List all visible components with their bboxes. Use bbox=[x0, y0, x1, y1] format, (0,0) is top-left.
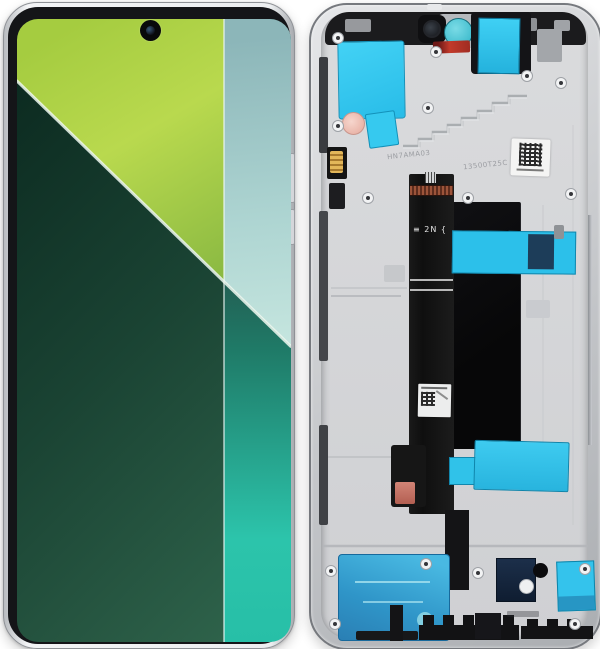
black-grommet-dot bbox=[533, 563, 548, 578]
camera-lens-hole bbox=[423, 20, 441, 38]
blue-tape-lower-mid bbox=[473, 440, 569, 492]
gold-contacts bbox=[330, 151, 343, 173]
blue-tape-top-left bbox=[337, 40, 405, 119]
blue-tape-top-right bbox=[478, 18, 521, 75]
screw bbox=[422, 102, 434, 114]
flex-white-line bbox=[410, 289, 453, 291]
antenna-block bbox=[390, 605, 403, 641]
punch-hole-camera-icon bbox=[140, 20, 161, 41]
flex-sticker-qr bbox=[421, 392, 435, 406]
right-rail-groove bbox=[588, 215, 592, 445]
screw bbox=[555, 77, 567, 89]
etched-marking-smudge bbox=[507, 611, 539, 617]
phone-screen bbox=[17, 19, 291, 642]
pink-adhesive-circle bbox=[342, 112, 365, 135]
blue-tape-small bbox=[365, 110, 400, 149]
screw bbox=[329, 618, 341, 630]
screw bbox=[420, 558, 432, 570]
tape-navy-section bbox=[528, 234, 554, 269]
phone-bezel bbox=[8, 7, 290, 644]
antenna-block bbox=[475, 613, 501, 639]
top-right-slot bbox=[537, 29, 562, 62]
antenna-comb-left bbox=[419, 625, 519, 640]
black-bracket bbox=[329, 183, 345, 209]
plate-recess bbox=[384, 265, 405, 282]
flex-top-label bbox=[425, 172, 436, 183]
screw bbox=[332, 120, 344, 132]
screw bbox=[569, 618, 581, 630]
screw bbox=[565, 188, 577, 200]
tape-streak bbox=[363, 601, 423, 603]
plate-slot bbox=[554, 225, 564, 239]
antenna-comb-right bbox=[521, 626, 593, 639]
gold-contact-module bbox=[327, 147, 347, 179]
screw bbox=[362, 192, 374, 204]
qr-pattern bbox=[519, 143, 543, 167]
flex-printed-code: ≡ 2N { bbox=[413, 225, 447, 234]
left-rail-segment bbox=[319, 425, 328, 525]
display-frame-back-assembly: HN7AMA03 13500T25C ≡ 2N { bbox=[309, 3, 600, 649]
left-rail-segment bbox=[319, 57, 328, 153]
phone-front-assembly bbox=[3, 2, 295, 649]
screw bbox=[521, 70, 533, 82]
flex-connector-contacts bbox=[410, 185, 453, 196]
tape-streak bbox=[355, 581, 430, 583]
flex-solder-patch-pink bbox=[395, 482, 415, 504]
screw bbox=[430, 46, 442, 58]
flex-white-line bbox=[410, 279, 453, 281]
bottom-black-strip bbox=[356, 631, 418, 640]
flex-qr-sticker bbox=[418, 384, 452, 418]
screw bbox=[579, 563, 591, 575]
screw bbox=[332, 32, 344, 44]
tape-dark-band bbox=[558, 595, 594, 610]
qr-sticker-text-line bbox=[517, 169, 544, 172]
screw bbox=[462, 192, 474, 204]
top-bar-slot bbox=[345, 19, 371, 32]
flex-sticker-text-line bbox=[421, 387, 447, 389]
product-photo: HN7AMA03 13500T25C ≡ 2N { bbox=[0, 0, 600, 649]
screw bbox=[472, 567, 484, 579]
flex-sticker-mark bbox=[436, 390, 448, 399]
left-rail-segment bbox=[319, 211, 328, 361]
screw-boss bbox=[519, 579, 534, 594]
plate-recess bbox=[526, 300, 550, 318]
stripe-divider-line bbox=[223, 19, 225, 642]
qr-code-sticker bbox=[510, 138, 550, 176]
screw bbox=[325, 565, 337, 577]
